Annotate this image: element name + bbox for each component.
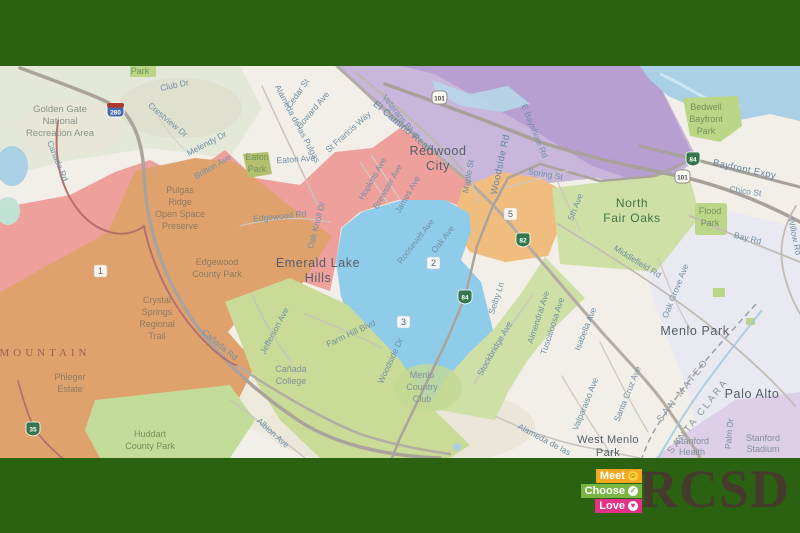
eaton-park-label: Park: [248, 164, 267, 174]
pulgas-ridge-label: Ridge: [168, 197, 192, 207]
ggnra-label: Golden Gate: [33, 104, 87, 115]
stanford-stadium-label: Stadium: [746, 444, 779, 454]
zone-5-marker: 5: [504, 208, 517, 220]
park-label: Park: [131, 66, 150, 76]
small-pond: [453, 443, 461, 451]
eaton-park-label: Eaton: [245, 152, 269, 162]
district-map[interactable]: Park Golden Gate National Recreation Are…: [0, 66, 800, 458]
stanford-stadium-label: Stanford: [746, 433, 780, 443]
person-circle-icon: ☺: [628, 471, 638, 481]
badge-meet: Meet ☺: [596, 469, 642, 483]
map-canvas[interactable]: Park Golden Gate National Recreation Are…: [0, 66, 800, 458]
crystal-springs-label: Springs: [142, 307, 173, 317]
city-label-north-fair-oaks: North: [616, 196, 648, 210]
bedwell-label: Park: [697, 126, 716, 136]
edgewood-park-label: Edgewood: [196, 257, 239, 267]
zone-2-marker: 2: [427, 257, 440, 269]
badge-choose-label: Choose: [585, 485, 625, 497]
zone-1-number: 1: [98, 266, 103, 276]
flood-park-label: Park: [701, 218, 720, 228]
menlo-cc-label: Country: [406, 382, 438, 392]
park-patch: [713, 288, 725, 297]
city-label-palo-alto: Palo Alto: [725, 387, 780, 401]
bedwell-label: Bedwell: [690, 102, 722, 112]
ggnra-label: Recreation Area: [26, 128, 95, 139]
crystal-springs-label: Trail: [148, 331, 165, 341]
zone-1-marker: 1: [94, 265, 107, 277]
us101-number: 101: [434, 96, 445, 103]
menlo-cc-label: Club: [413, 394, 432, 404]
pulgas-ridge-label: Preserve: [162, 221, 198, 231]
logo-badges: Meet ☺ Choose ✓ Love ♥: [581, 469, 642, 513]
ca35-number: 35: [29, 427, 37, 434]
ca84-number: 84: [461, 295, 469, 302]
heart-circle-icon: ♥: [628, 501, 638, 511]
badge-choose: Choose ✓: [581, 484, 642, 498]
city-label-north-fair-oaks: Fair Oaks: [603, 211, 660, 225]
badge-love-label: Love: [599, 500, 625, 512]
flood-park-label: Flood: [699, 206, 722, 216]
city-label-redwood-city: City: [426, 159, 450, 173]
area-label-mountain: MOUNTAIN: [0, 347, 91, 359]
rcsd-logo: Meet ☺ Choose ✓ Love ♥ RCSD: [581, 462, 790, 516]
menlo-cc-label: Menlo: [410, 370, 435, 380]
zone-3-number: 3: [401, 317, 406, 327]
pulgas-ridge-label: Pulgas: [166, 185, 194, 195]
ca82-number: 82: [519, 238, 527, 245]
edgewood-park-label: County Park: [192, 269, 242, 279]
phleger-label: Phleger: [54, 372, 85, 382]
ca84-number: 84: [689, 157, 697, 164]
canada-college-label: College: [276, 376, 307, 386]
slide-canvas: Park Golden Gate National Recreation Are…: [0, 0, 800, 533]
huddart-label: County Park: [125, 441, 175, 451]
i280-shield: 280: [107, 103, 124, 117]
zone-2-number: 2: [431, 258, 436, 268]
stanford-health-label: Health: [679, 447, 705, 457]
ca84-shield: 84: [458, 290, 472, 304]
zone-5-number: 5: [508, 209, 513, 219]
ggnra-label: National: [43, 116, 78, 127]
city-label-west-menlo: Park: [596, 447, 620, 458]
canada-college-label: Cañada: [275, 364, 307, 374]
us101-number: 101: [677, 175, 688, 182]
city-label-west-menlo: West Menlo: [577, 434, 639, 446]
ca84-shield-2: 84: [686, 152, 700, 166]
ca35-shield: 35: [26, 422, 40, 436]
city-label-menlo-park: Menlo Park: [660, 324, 729, 338]
i280-number: 280: [110, 110, 121, 117]
us101-shield-2: 101: [675, 170, 690, 183]
check-circle-icon: ✓: [628, 486, 638, 496]
area-label-emerald-lake: Emerald Lake: [276, 256, 360, 270]
crystal-springs-label: Regional: [139, 319, 175, 329]
crystal-springs-label: Crystal: [143, 295, 171, 305]
phleger-label: Estate: [57, 384, 83, 394]
us101-shield: 101: [432, 91, 447, 104]
badge-meet-label: Meet: [600, 470, 625, 482]
ca82-shield: 82: [516, 233, 530, 247]
area-label-emerald-lake: Hills: [305, 271, 332, 285]
badge-love: Love ♥: [595, 499, 642, 513]
bedwell-label: Bayfront: [689, 114, 723, 124]
brand-wordmark: RCSD: [639, 462, 790, 516]
huddart-label: Huddart: [134, 429, 167, 439]
pulgas-ridge-label: Open Space: [155, 209, 205, 219]
zone-3-marker: 3: [397, 316, 410, 328]
